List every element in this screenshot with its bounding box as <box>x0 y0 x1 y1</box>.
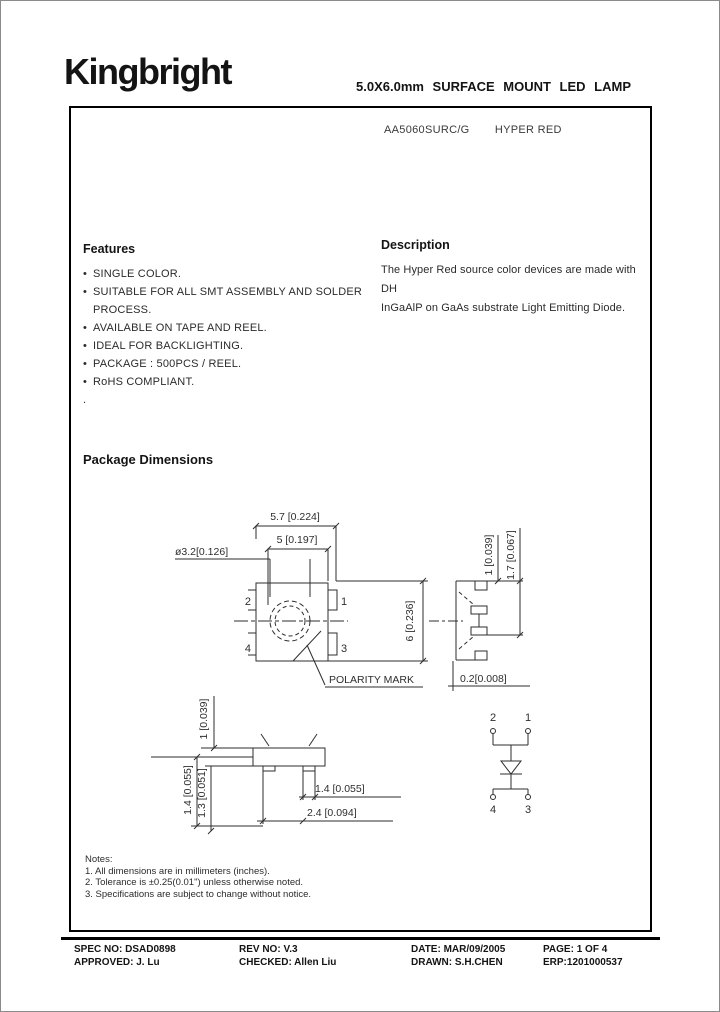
dim-tab-height-label: 1 [0.039] <box>198 698 210 739</box>
trailing-period: . <box>83 391 383 409</box>
dim-lead-label: 1.4 [0.055] <box>315 783 365 795</box>
footer-checked: CHECKED: Allen Liu <box>239 957 336 968</box>
description-section: Description The Hyper Red source color d… <box>381 238 649 318</box>
description-line: The Hyper Red source color devices are m… <box>381 261 649 299</box>
polarity-mark-label: POLARITY MARK <box>329 674 414 686</box>
top-view-pin2-label: 2 <box>245 596 251 608</box>
package-dimensions-heading: Package Dimensions <box>83 452 213 467</box>
footer-erp: ERP:1201000537 <box>543 957 623 968</box>
notes-section: Notes: 1. All dimensions are in millimet… <box>85 854 311 900</box>
dim-body-height-label: 1.3 [0.051] <box>196 768 208 818</box>
content-frame: AA5060SURC/G HYPER RED Features SINGLE C… <box>69 106 652 932</box>
part-color-name: HYPER RED <box>495 124 562 136</box>
description-line: InGaAlP on GaAs substrate Light Emitting… <box>381 299 649 318</box>
dim-height-label: 6 [0.236] <box>404 600 416 641</box>
side-view-drawing: 1 [0.039] 1.7 [0.067] 0.2[0.008] <box>429 528 530 691</box>
dim-lens-label: ø3.2[0.126] <box>175 546 228 558</box>
footer-page: PAGE: 1 OF 4 <box>543 944 607 955</box>
feature-item: PACKAGE : 500PCS / REEL. <box>83 355 383 373</box>
feature-item: SINGLE COLOR. <box>83 265 383 283</box>
notes-heading: Notes: <box>85 854 311 866</box>
dim-tab-label: 1 [0.039] <box>483 534 495 575</box>
description-heading: Description <box>381 238 649 252</box>
circuit-schematic: 2 1 4 3 <box>490 712 531 816</box>
top-view-pin1-label: 1 <box>341 596 347 608</box>
dim-total-height-label: 1.4 [0.055] <box>182 765 194 815</box>
note-item: 1. All dimensions are in millimeters (in… <box>85 866 311 878</box>
footer-date: DATE: MAR/09/2005 <box>411 944 505 955</box>
footer-divider <box>61 937 660 940</box>
note-item: 3. Specifications are subject to change … <box>85 889 311 901</box>
top-view-drawing: 5.7 [0.224] 5 [0.197] ø3.2[0.126] <box>175 511 428 687</box>
note-item: 2. Tolerance is ±0.25(0.01") unless othe… <box>85 877 311 889</box>
feature-item: IDEAL FOR BACKLIGHTING. <box>83 337 383 355</box>
front-view-drawing: 1.4 [0.055] 2.4 [0.094] 1 [0.039] 1.4 [0… <box>151 696 401 834</box>
footer: SPEC NO: DSAD0898 REV NO: V.3 DATE: MAR/… <box>61 944 661 974</box>
dim-lead-pitch-label: 2.4 [0.094] <box>307 807 357 819</box>
features-heading: Features <box>83 242 383 256</box>
schematic-pin3-label: 3 <box>525 804 531 816</box>
feature-item: AVAILABLE ON TAPE AND REEL. <box>83 319 383 337</box>
footer-rev-no: REV NO: V.3 <box>239 944 298 955</box>
features-section: Features SINGLE COLOR. SUITABLE FOR ALL … <box>83 242 383 409</box>
feature-item: SUITABLE FOR ALL SMT ASSEMBLY AND SOLDER… <box>83 283 383 319</box>
footer-spec-no: SPEC NO: DSAD0898 <box>74 944 176 955</box>
top-view-pin3-label: 3 <box>341 643 347 655</box>
top-view-pin4-label: 4 <box>245 643 251 655</box>
kingbright-logo: Kingbright <box>64 51 231 93</box>
part-number-line: AA5060SURC/G HYPER RED <box>384 124 584 136</box>
dim-inner-width-label: 5 [0.197] <box>277 534 318 546</box>
schematic-pin4-label: 4 <box>490 804 496 816</box>
dim-outer-width-label: 5.7 [0.224] <box>270 511 320 523</box>
schematic-pin1-label: 1 <box>525 712 531 724</box>
package-dimensions-drawing: 5.7 [0.224] 5 [0.197] ø3.2[0.126] <box>71 493 654 865</box>
footer-approved: APPROVED: J. Lu <box>74 957 160 968</box>
led-diode-symbol <box>501 761 521 774</box>
dim-standoff-label: 0.2[0.008] <box>460 673 507 685</box>
page-title: 5.0X6.0mm SURFACE MOUNT LED LAMP <box>356 79 631 94</box>
dim-body-label: 1.7 [0.067] <box>505 530 517 580</box>
feature-item: RoHS COMPLIANT. <box>83 373 383 391</box>
footer-drawn: DRAWN: S.H.CHEN <box>411 957 503 968</box>
datasheet-page: Kingbright 5.0X6.0mm SURFACE MOUNT LED L… <box>0 0 720 1012</box>
part-number: AA5060SURC/G <box>384 124 470 136</box>
schematic-pin2-label: 2 <box>490 712 496 724</box>
